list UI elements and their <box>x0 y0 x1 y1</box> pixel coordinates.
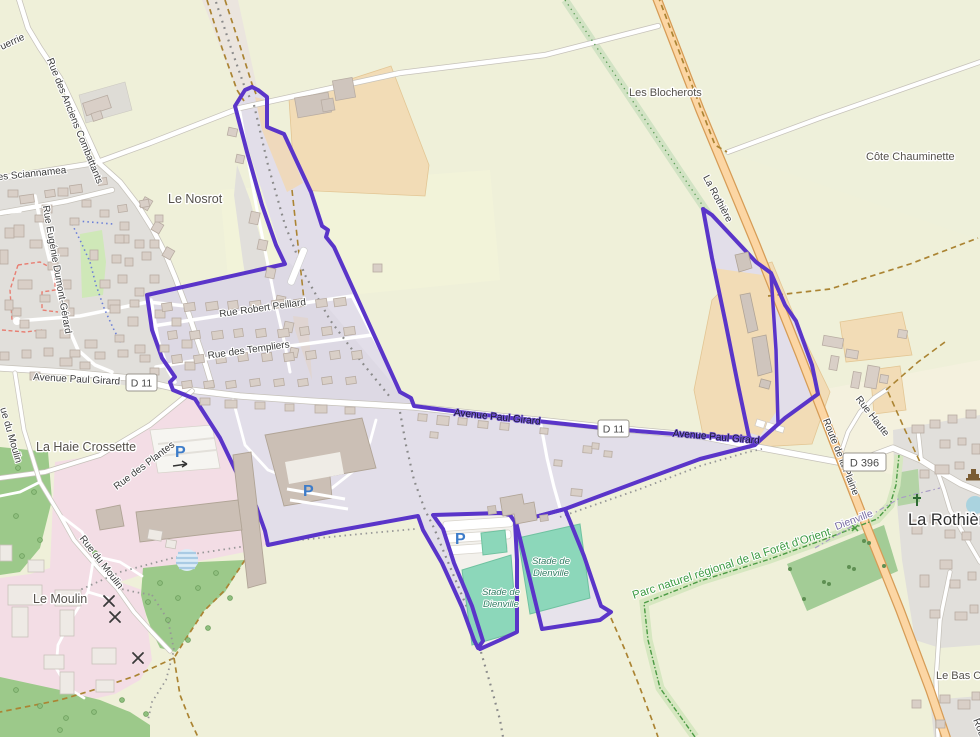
svg-text:Dienville: Dienville <box>483 599 519 610</box>
svg-text:Dienville: Dienville <box>533 568 569 579</box>
svg-text:La Rothière: La Rothière <box>908 511 980 529</box>
svg-text:Le Moulin: Le Moulin <box>33 592 87 606</box>
svg-text:D 11: D 11 <box>603 424 625 436</box>
svg-text:Stade de: Stade de <box>482 587 520 598</box>
svg-text:D 396: D 396 <box>850 458 879 470</box>
svg-text:Le Nosrot: Le Nosrot <box>168 192 223 206</box>
svg-text:Stade de: Stade de <box>532 556 570 567</box>
svg-text:P: P <box>303 483 314 500</box>
svg-text:D 11: D 11 <box>131 378 153 390</box>
svg-text:Les Blocherots: Les Blocherots <box>629 87 702 99</box>
svg-text:P: P <box>455 531 466 548</box>
svg-text:P: P <box>175 444 186 461</box>
svg-text:La Haie Crossette: La Haie Crossette <box>36 440 136 454</box>
svg-text:Côte Chauminette: Côte Chauminette <box>866 151 955 163</box>
svg-text:Le Bas Che: Le Bas Che <box>936 670 980 682</box>
